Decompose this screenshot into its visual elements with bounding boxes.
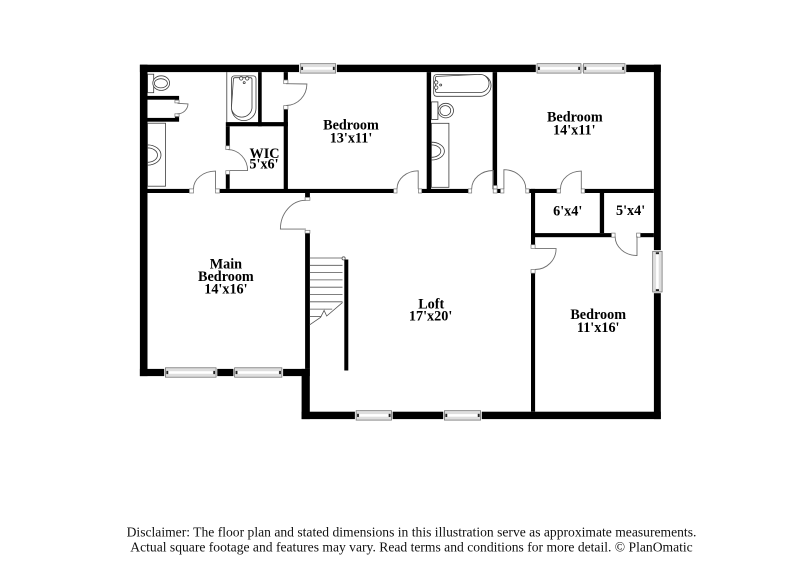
svg-text:17'x20': 17'x20': [409, 309, 452, 325]
svg-text:6'x4': 6'x4': [553, 203, 582, 219]
svg-text:Actual square footage and feat: Actual square footage and features may v…: [130, 540, 692, 555]
svg-text:13'x11': 13'x11': [330, 130, 373, 146]
svg-text:11'x16': 11'x16': [577, 320, 620, 336]
svg-text:Disclaimer: The floor plan and: Disclaimer: The floor plan and stated di…: [127, 525, 697, 540]
svg-text:14'x11': 14'x11': [553, 122, 596, 138]
svg-text:5'x6': 5'x6': [249, 156, 278, 172]
svg-text:5'x4': 5'x4': [616, 203, 645, 219]
svg-text:14'x16': 14'x16': [204, 281, 247, 297]
